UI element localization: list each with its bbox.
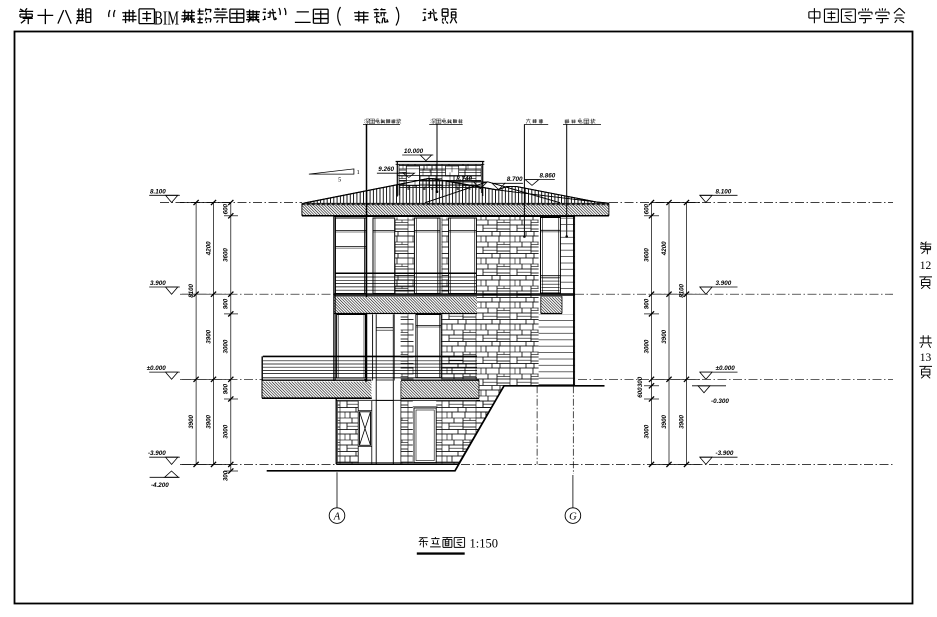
svg-text:1:150: 1:150 xyxy=(470,537,498,551)
svg-text:5: 5 xyxy=(338,177,341,184)
svg-text:3900: 3900 xyxy=(188,414,195,428)
svg-text:900: 900 xyxy=(643,298,650,309)
svg-text:8.100: 8.100 xyxy=(716,188,732,195)
svg-text:8.740: 8.740 xyxy=(456,175,472,182)
svg-text:300: 300 xyxy=(637,376,644,387)
svg-text:3000: 3000 xyxy=(643,339,650,353)
svg-text:3600: 3600 xyxy=(643,248,650,262)
svg-text:12: 12 xyxy=(920,260,932,272)
svg-text:8.860: 8.860 xyxy=(540,173,556,180)
svg-text:3000: 3000 xyxy=(223,424,230,438)
svg-text:±0.000: ±0.000 xyxy=(716,365,736,372)
svg-text:900: 900 xyxy=(223,298,230,309)
svg-text:3.900: 3.900 xyxy=(150,280,166,287)
svg-text:10.000: 10.000 xyxy=(404,148,424,155)
svg-text:4200: 4200 xyxy=(205,241,212,256)
svg-text:-3.900: -3.900 xyxy=(716,450,734,457)
svg-text:-3.900: -3.900 xyxy=(148,450,166,457)
svg-text:±0.000: ±0.000 xyxy=(147,365,167,372)
svg-text:4200: 4200 xyxy=(661,241,668,256)
svg-text:8100: 8100 xyxy=(188,283,195,297)
svg-text:3900: 3900 xyxy=(205,329,212,343)
svg-text:3000: 3000 xyxy=(223,339,230,353)
svg-text:1: 1 xyxy=(357,169,360,176)
svg-text:9.260: 9.260 xyxy=(378,166,394,173)
svg-text:G: G xyxy=(569,511,577,522)
svg-text:600: 600 xyxy=(637,387,644,398)
svg-text:600: 600 xyxy=(643,203,650,214)
svg-text:-0.300: -0.300 xyxy=(711,398,729,405)
svg-text:3900: 3900 xyxy=(205,414,212,428)
svg-text:3.900: 3.900 xyxy=(716,280,732,287)
svg-text:3900: 3900 xyxy=(661,329,668,343)
svg-text:8.100: 8.100 xyxy=(150,188,166,195)
svg-text:-4.200: -4.200 xyxy=(151,482,169,489)
svg-text:600: 600 xyxy=(223,203,230,214)
svg-text:300: 300 xyxy=(223,470,230,481)
svg-text:BIM: BIM xyxy=(154,8,179,30)
svg-text:3600: 3600 xyxy=(223,248,230,262)
svg-text:13: 13 xyxy=(920,352,932,364)
svg-text:3900: 3900 xyxy=(678,414,685,428)
svg-text:8100: 8100 xyxy=(678,283,685,297)
svg-text:3900: 3900 xyxy=(661,414,668,428)
svg-text:8.700: 8.700 xyxy=(507,176,523,183)
svg-text:900: 900 xyxy=(223,383,230,394)
svg-text:A: A xyxy=(333,511,341,522)
svg-text:3000: 3000 xyxy=(643,424,650,438)
